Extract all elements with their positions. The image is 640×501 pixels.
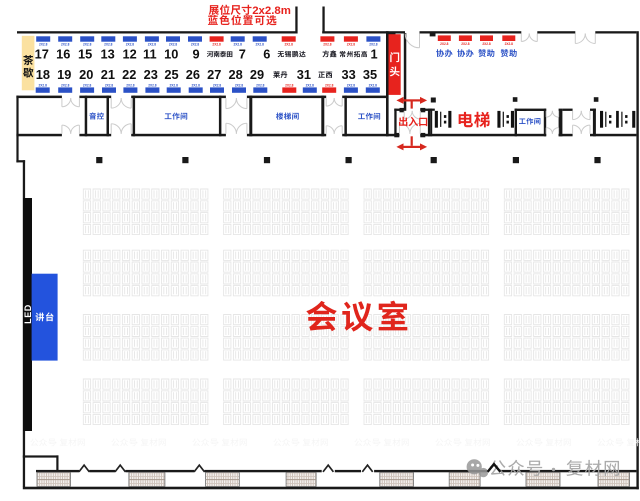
svg-text:2X2.8: 2X2.8 <box>347 43 356 47</box>
svg-text:7: 7 <box>239 47 246 62</box>
svg-text:2X2.8: 2X2.8 <box>213 83 222 87</box>
svg-text:2X2.8: 2X2.8 <box>505 42 514 46</box>
svg-text:28: 28 <box>228 67 242 82</box>
svg-text:2X2.8: 2X2.8 <box>325 83 334 87</box>
svg-text:2X2.8: 2X2.8 <box>212 43 221 47</box>
svg-text:31: 31 <box>297 67 311 82</box>
svg-text:2X2.8: 2X2.8 <box>482 42 491 46</box>
svg-text:29: 29 <box>250 67 264 82</box>
svg-text:16: 16 <box>56 47 70 62</box>
svg-text:LED: LED <box>23 304 33 324</box>
svg-text:22: 22 <box>122 67 136 82</box>
svg-text:2X2.8: 2X2.8 <box>148 83 157 87</box>
svg-text:2X2.8: 2X2.8 <box>461 42 470 46</box>
svg-text:2X2.8: 2X2.8 <box>347 83 356 87</box>
svg-text:2X2.8: 2X2.8 <box>369 83 378 87</box>
svg-text:2X2.8: 2X2.8 <box>61 83 70 87</box>
svg-text:2X2.8: 2X2.8 <box>105 83 114 87</box>
svg-text:2X2.8: 2X2.8 <box>285 83 294 87</box>
svg-text:10: 10 <box>164 47 178 62</box>
svg-text:1: 1 <box>370 47 377 62</box>
svg-text:33: 33 <box>341 67 355 82</box>
svg-text:13: 13 <box>100 47 114 62</box>
svg-text:2X2.8: 2X2.8 <box>285 43 294 47</box>
svg-text:2X2.8: 2X2.8 <box>440 42 449 46</box>
svg-text:15: 15 <box>78 47 92 62</box>
svg-text:25: 25 <box>164 67 178 82</box>
svg-text:18: 18 <box>36 67 50 82</box>
svg-text:2X2.8: 2X2.8 <box>323 43 332 47</box>
svg-text:2X2.8: 2X2.8 <box>170 83 179 87</box>
svg-text:20: 20 <box>79 67 93 82</box>
svg-text:21: 21 <box>101 67 115 82</box>
svg-text:2X2.8: 2X2.8 <box>192 83 201 87</box>
svg-text:35: 35 <box>363 67 377 82</box>
svg-text:9: 9 <box>192 47 199 62</box>
svg-text:2X2.8: 2X2.8 <box>235 83 244 87</box>
svg-text:2X2.8: 2X2.8 <box>83 83 92 87</box>
svg-text:27: 27 <box>207 67 221 82</box>
svg-text:2X2.8: 2X2.8 <box>39 83 48 87</box>
svg-text:2x2.8m: 2x2.8m <box>252 5 291 17</box>
svg-text:2X2.8: 2X2.8 <box>126 83 135 87</box>
svg-text:2X2.8: 2X2.8 <box>256 83 265 87</box>
svg-text:23: 23 <box>144 67 158 82</box>
svg-text:17: 17 <box>35 47 49 62</box>
svg-text:6: 6 <box>263 47 270 62</box>
svg-text:26: 26 <box>186 67 200 82</box>
svg-text:2X2.8: 2X2.8 <box>306 83 315 87</box>
svg-text:19: 19 <box>57 67 71 82</box>
svg-text:12: 12 <box>122 47 136 62</box>
svg-text:11: 11 <box>143 47 157 62</box>
